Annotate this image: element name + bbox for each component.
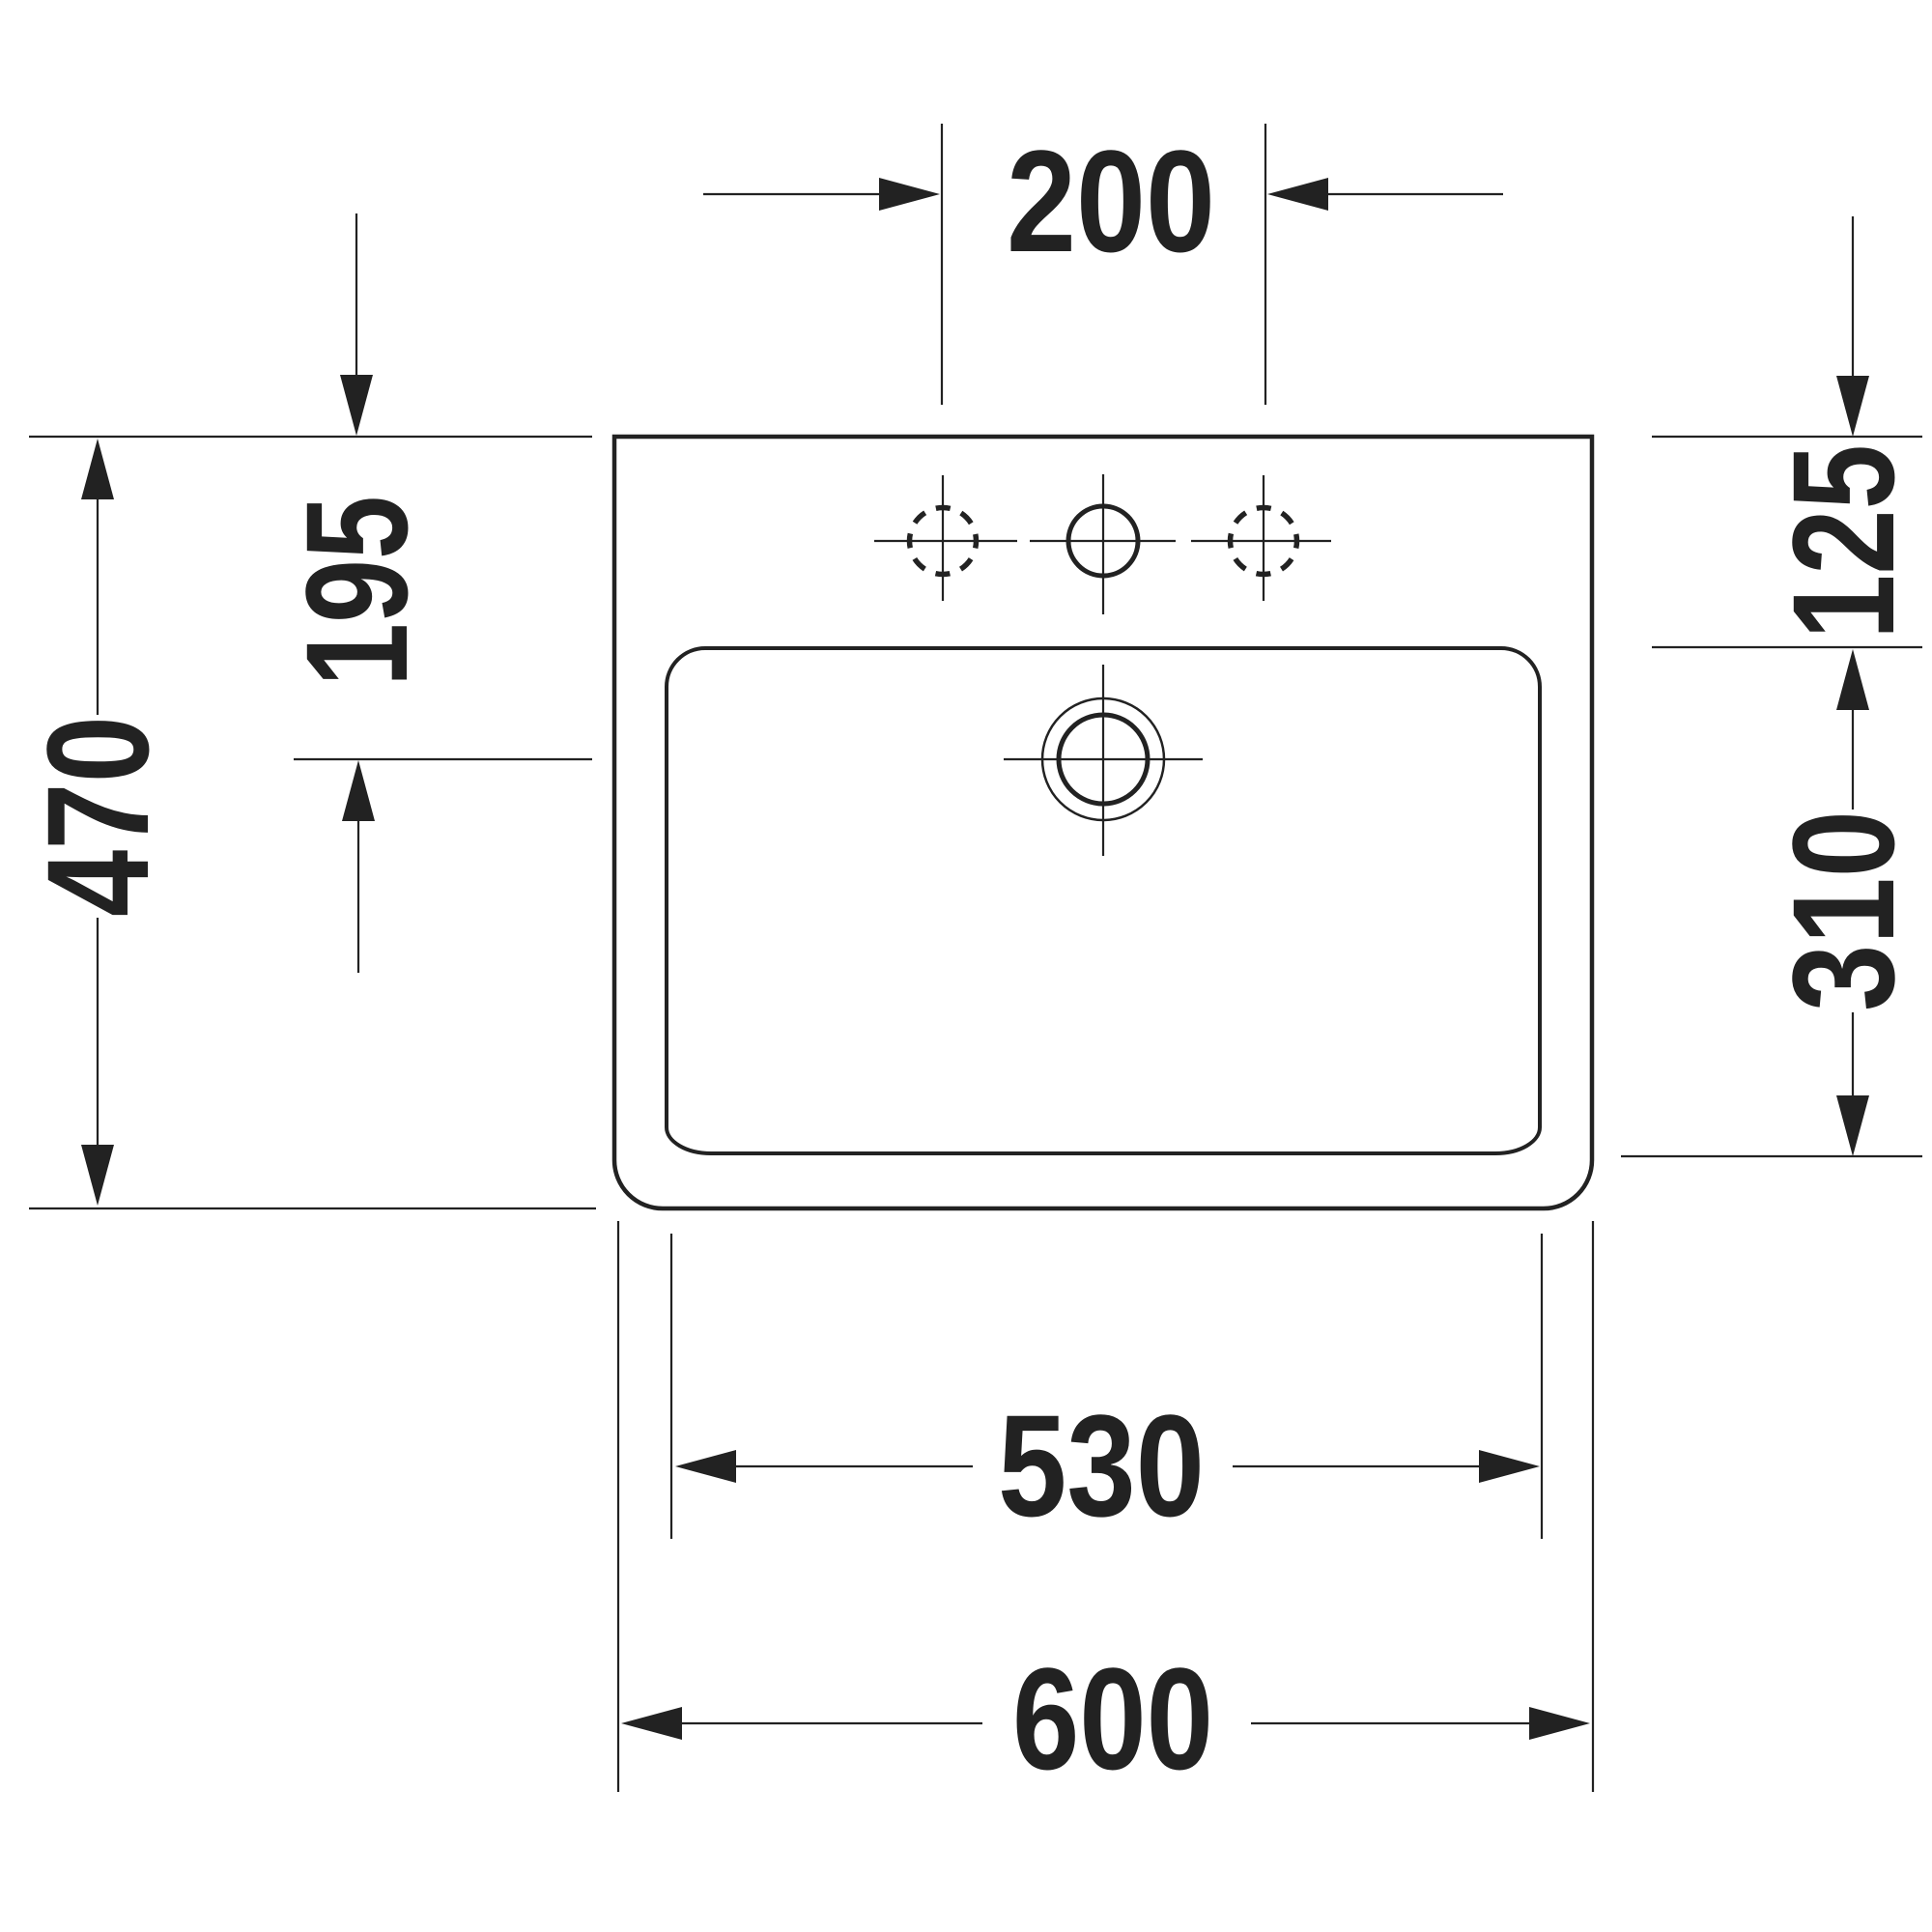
svg-text:470: 470 (16, 716, 179, 917)
svg-text:310: 310 (1762, 810, 1924, 1011)
svg-text:200: 200 (1007, 120, 1215, 282)
svg-text:125: 125 (1762, 444, 1924, 639)
svg-text:195: 195 (275, 496, 438, 687)
svg-text:600: 600 (1012, 1637, 1213, 1800)
svg-text:530: 530 (998, 1384, 1205, 1547)
